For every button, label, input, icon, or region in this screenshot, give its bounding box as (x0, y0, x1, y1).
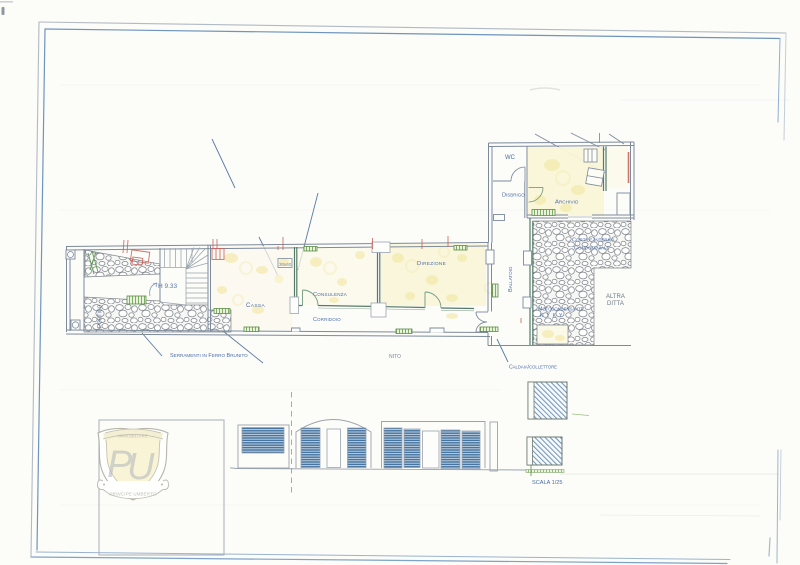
svg-text:WC: WC (505, 155, 516, 161)
svg-text:30x60: 30x60 (279, 262, 292, 267)
svg-text:NITO: NITO (389, 354, 401, 360)
svg-text:SCALA 1/25: SCALA 1/25 (532, 480, 562, 486)
svg-text:PORTICO: PORTICO (98, 305, 104, 328)
svg-text:CASSA: CASSA (246, 303, 266, 309)
svg-text:DITTA: DITTA (607, 301, 624, 307)
svg-text:IMMOBILIARE: IMMOBILIARE (118, 434, 148, 439)
svg-text:KYKY: KYKY (540, 313, 565, 319)
svg-text:H 9.33: H 9.33 (158, 283, 178, 290)
svg-text:ALTRA: ALTRA (606, 294, 625, 300)
svg-text:PRINCIPE UMBERTO: PRINCIPE UMBERTO (110, 492, 157, 497)
